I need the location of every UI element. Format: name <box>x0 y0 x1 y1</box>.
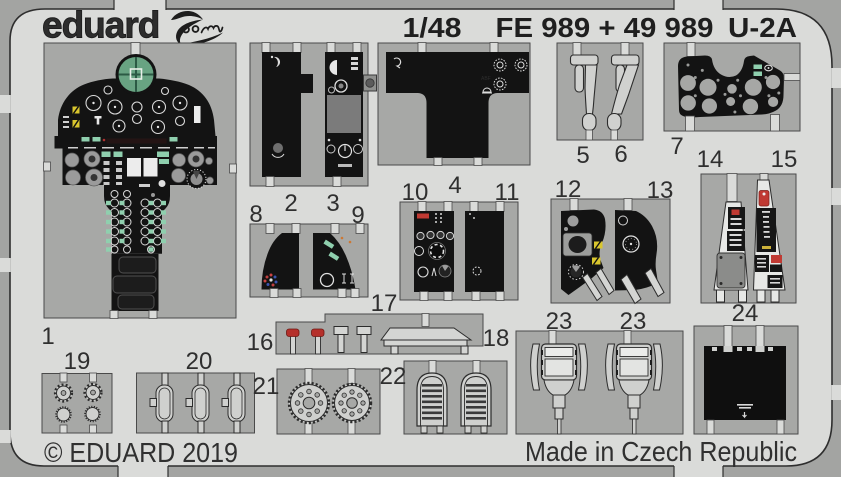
svg-text:3: 3 <box>326 190 339 217</box>
svg-text:16: 16 <box>247 329 274 356</box>
svg-text:1/48: 1/48 <box>403 12 462 43</box>
svg-text:4: 4 <box>448 172 461 199</box>
svg-text:eduard: eduard <box>42 5 159 46</box>
svg-text:1: 1 <box>41 323 54 350</box>
svg-text:19: 19 <box>64 348 91 375</box>
svg-text:14: 14 <box>697 146 724 173</box>
svg-text:FE 989 + 49 989: FE 989 + 49 989 <box>496 12 714 43</box>
svg-text:U-2A: U-2A <box>728 12 797 43</box>
svg-text:8: 8 <box>249 201 262 228</box>
svg-text:22: 22 <box>380 363 407 390</box>
svg-text:7: 7 <box>670 133 683 160</box>
svg-text:6: 6 <box>614 141 627 168</box>
svg-text:17: 17 <box>371 290 398 317</box>
svg-text:24: 24 <box>732 300 759 327</box>
svg-text:20: 20 <box>186 348 213 375</box>
svg-text:18: 18 <box>483 325 510 352</box>
svg-text:21: 21 <box>253 373 280 400</box>
svg-text:ABF: ABF <box>481 76 491 82</box>
svg-text:© EDUARD 2019: © EDUARD 2019 <box>44 437 238 468</box>
svg-text:15: 15 <box>771 146 798 173</box>
svg-text:2: 2 <box>284 190 297 217</box>
svg-text:5: 5 <box>576 142 589 169</box>
svg-text:13: 13 <box>647 177 674 204</box>
svg-text:Made in Czech Republic: Made in Czech Republic <box>525 436 797 467</box>
